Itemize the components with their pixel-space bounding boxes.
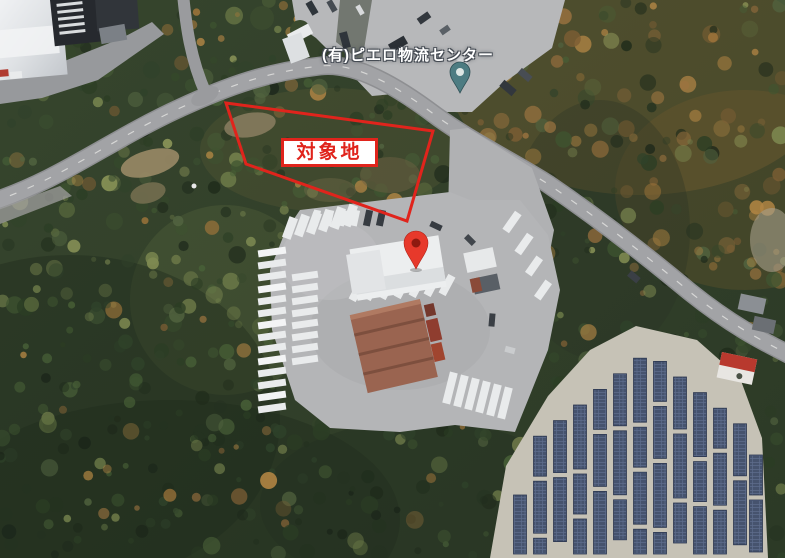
business-label[interactable]: (有)ピエロ物流センター [322,44,490,65]
aerial-imagery [0,0,785,558]
roadside-shed [738,293,767,314]
satellite-map-canvas[interactable]: (有)ピエロ物流センター 対象地 [0,0,785,558]
target-site-label: 対象地 [281,138,378,167]
